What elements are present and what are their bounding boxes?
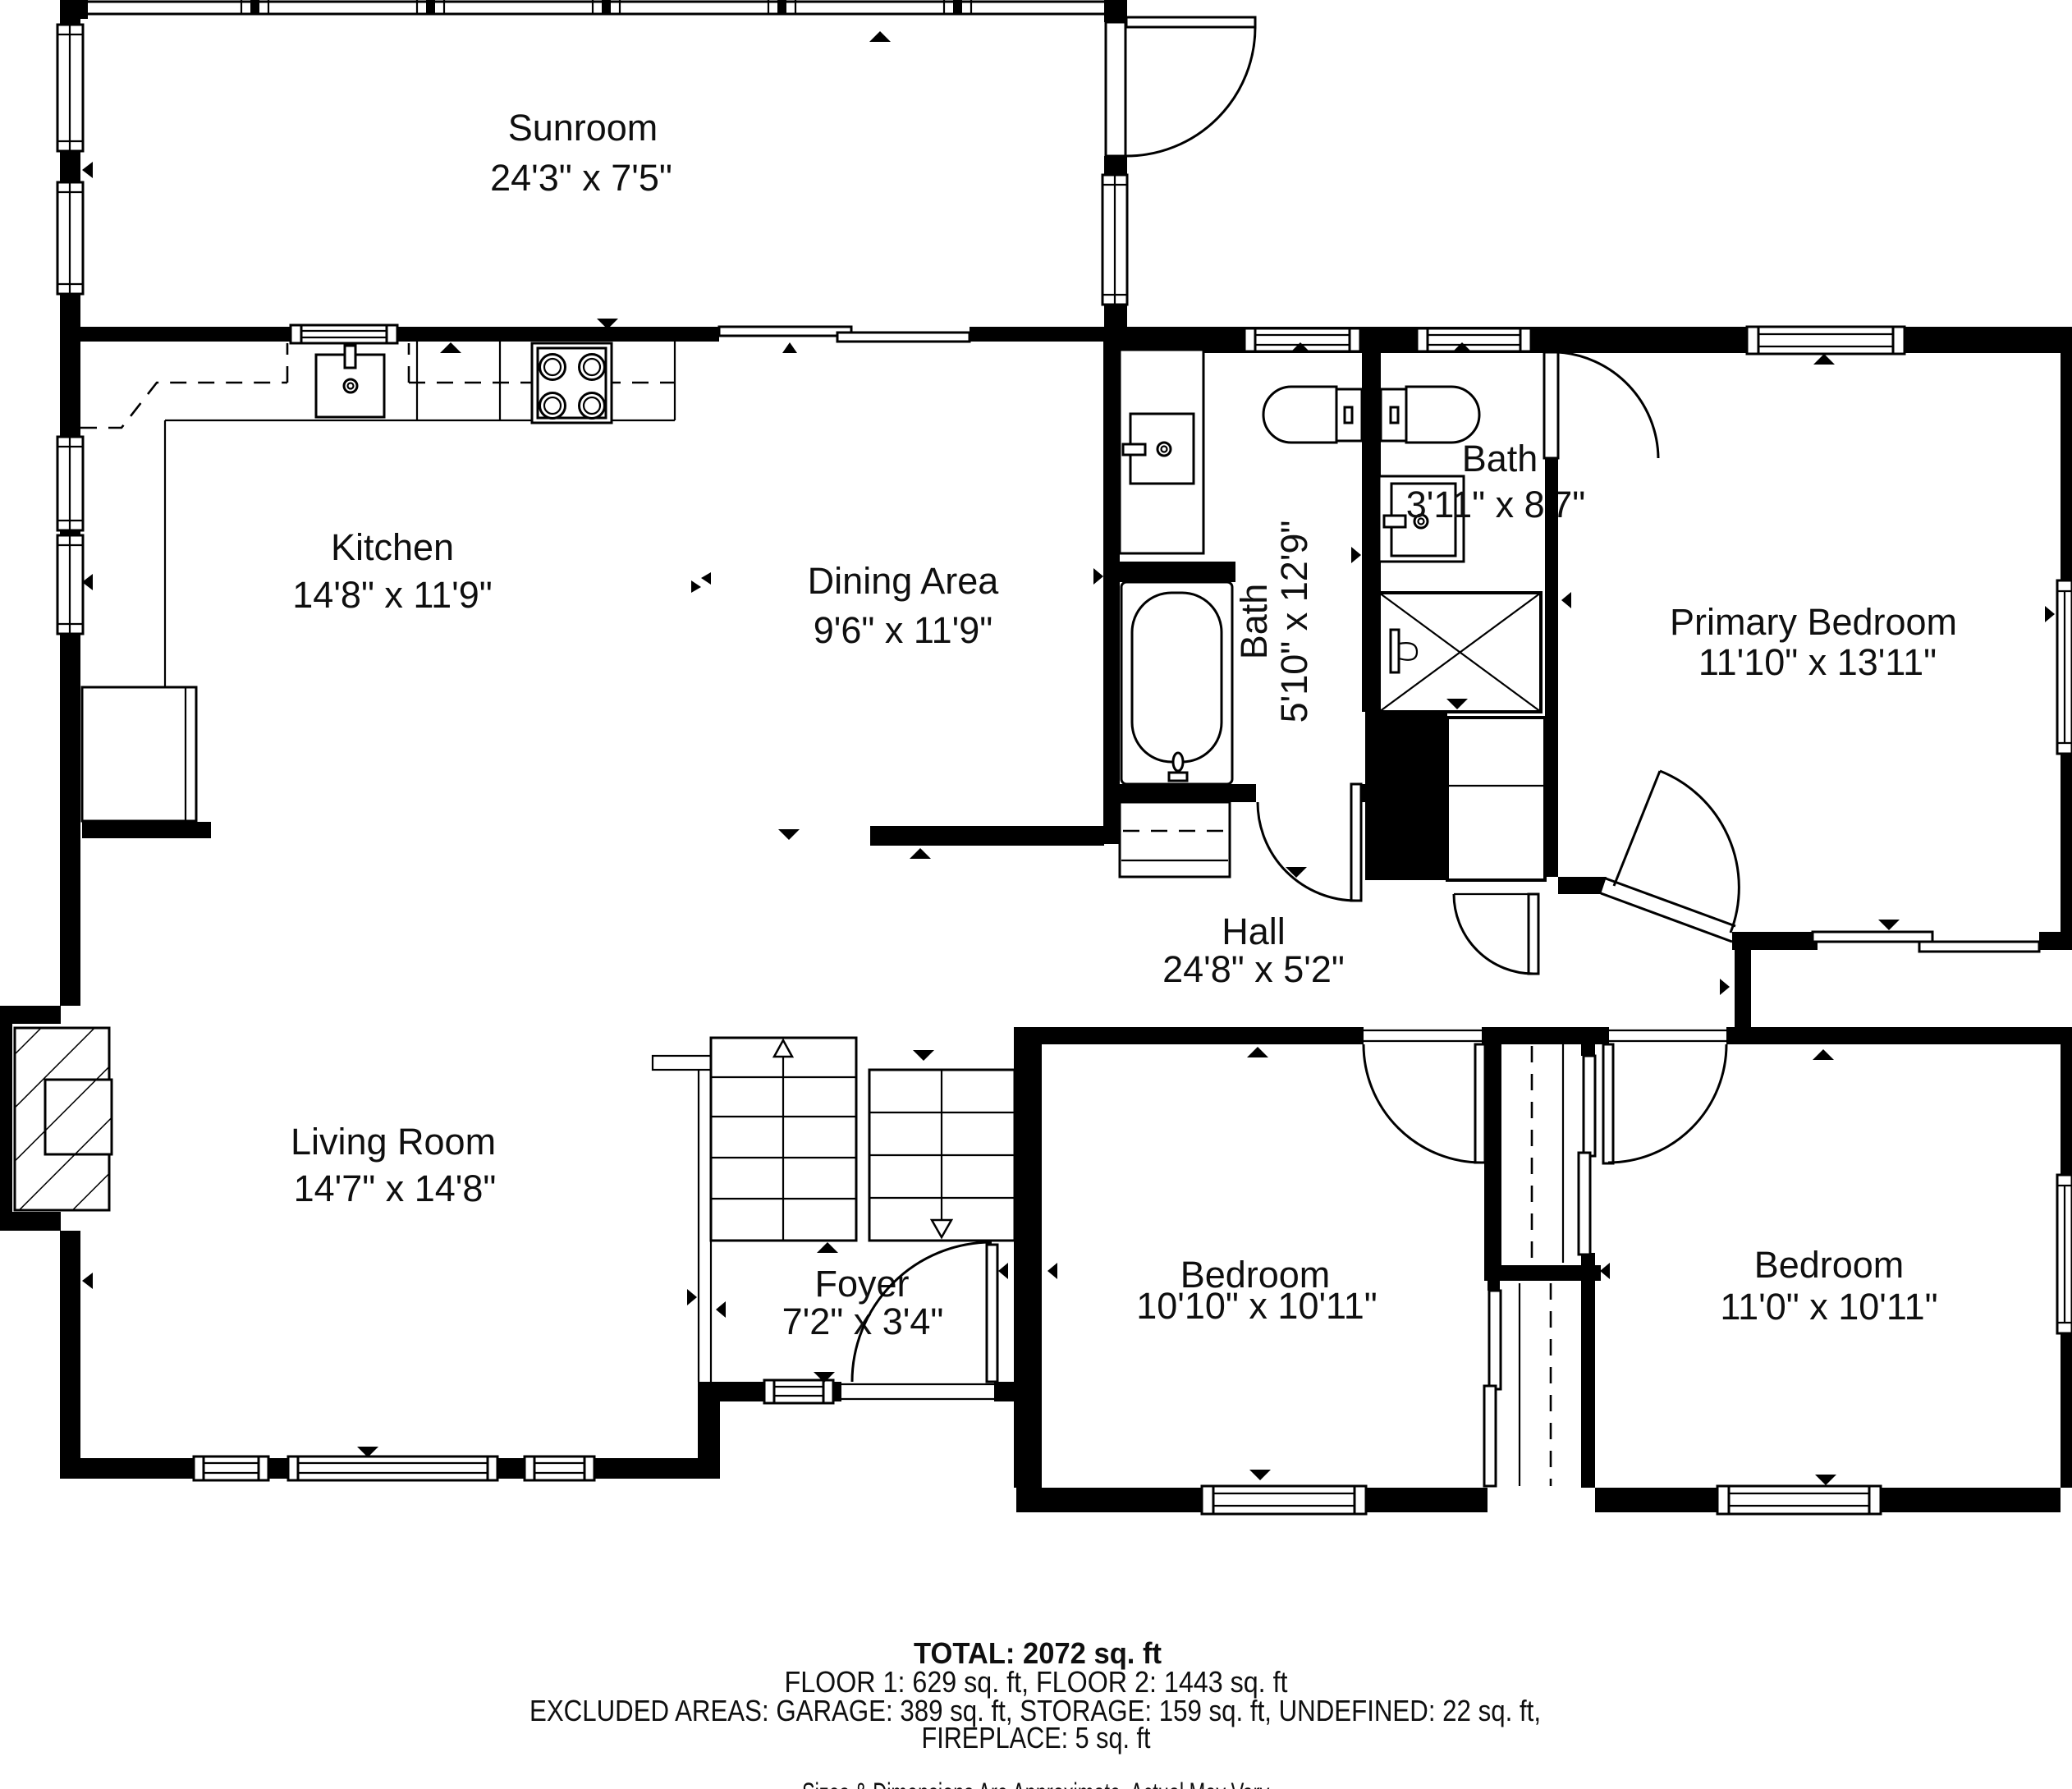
svg-text:11'0" x 10'11": 11'0" x 10'11" — [1720, 1286, 1937, 1328]
svg-text:Bedroom: Bedroom — [1754, 1244, 1905, 1286]
svg-text:Bath: Bath — [1233, 584, 1275, 660]
svg-text:9'6" x 11'9": 9'6" x 11'9" — [814, 609, 992, 651]
svg-text:Sunroom: Sunroom — [508, 107, 658, 149]
svg-text:Primary Bedroom: Primary Bedroom — [1670, 601, 1957, 643]
svg-text:3'11" x 8'7": 3'11" x 8'7" — [1406, 484, 1585, 525]
svg-text:11'10" x 13'11": 11'10" x 13'11" — [1698, 641, 1937, 683]
svg-text:14'7" x 14'8": 14'7" x 14'8" — [294, 1167, 497, 1209]
svg-text:24'3" x 7'5": 24'3" x 7'5" — [490, 157, 672, 199]
svg-text:14'8" x 11'9": 14'8" x 11'9" — [292, 574, 492, 616]
svg-text:24'8" x 5'2": 24'8" x 5'2" — [1162, 948, 1345, 990]
svg-text:Kitchen: Kitchen — [331, 526, 454, 568]
svg-text:Dining Area: Dining Area — [808, 560, 1000, 602]
svg-text:Sizes & Dimensions Are Approxi: Sizes & Dimensions Are Approximate. Actu… — [802, 1778, 1273, 1789]
svg-text:FIREPLACE: 5 sq. ft: FIREPLACE: 5 sq. ft — [922, 1721, 1151, 1755]
svg-text:Foyer: Foyer — [814, 1263, 909, 1305]
svg-text:7'2" x 3'4": 7'2" x 3'4" — [782, 1300, 944, 1342]
svg-text:Hall: Hall — [1222, 911, 1286, 952]
svg-text:5'10" x 12'9": 5'10" x 12'9" — [1273, 521, 1315, 723]
svg-text:Living Room: Living Room — [291, 1121, 496, 1163]
svg-text:10'10" x 10'11": 10'10" x 10'11" — [1136, 1285, 1378, 1327]
svg-text:Bath: Bath — [1462, 438, 1538, 479]
